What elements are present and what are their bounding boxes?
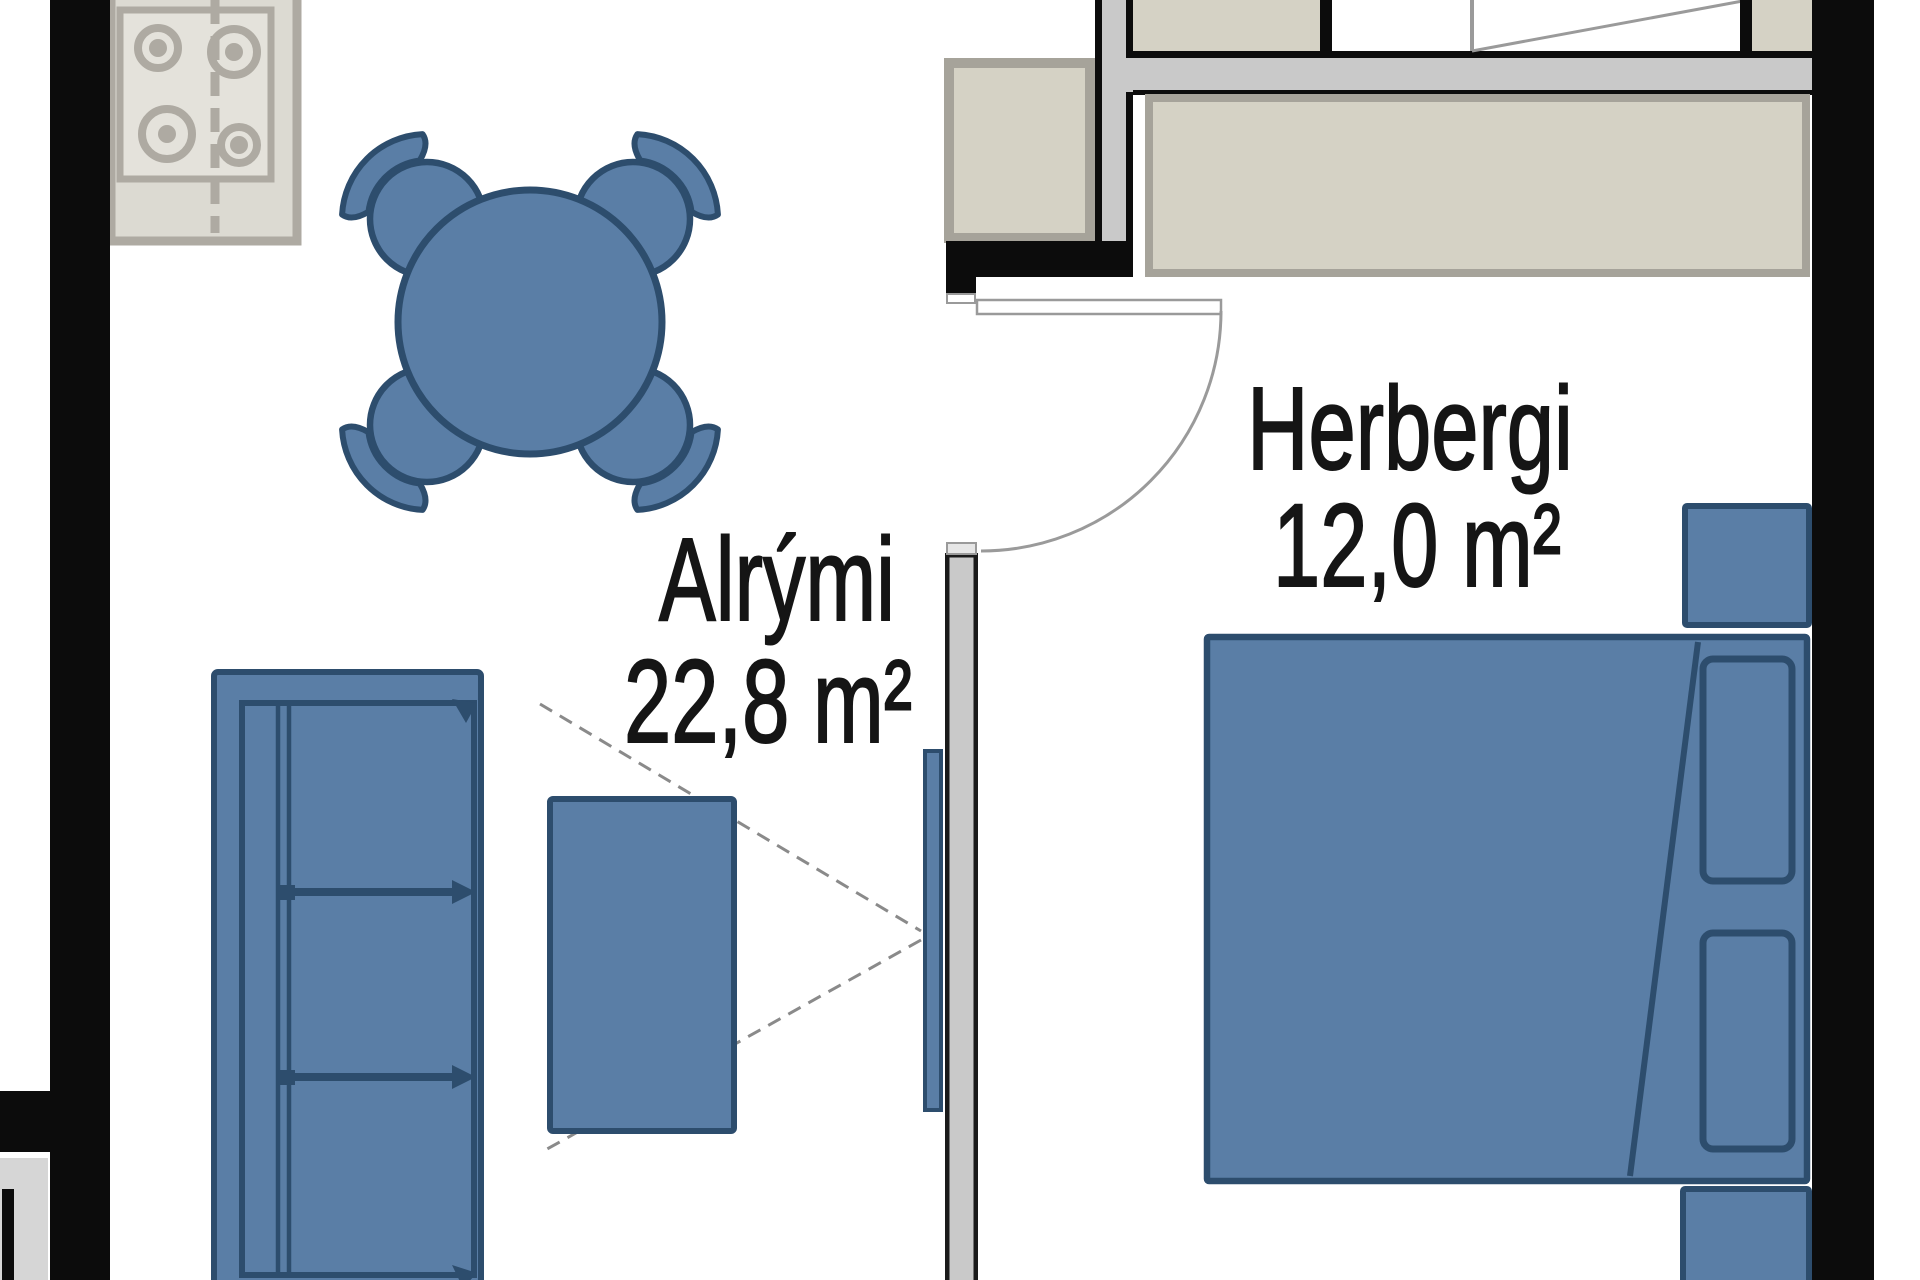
svg-text:22,8 m²: 22,8 m² — [624, 635, 912, 767]
svg-text:Alrými: Alrými — [659, 513, 895, 645]
svg-text:12,0 m²: 12,0 m² — [1273, 479, 1561, 611]
svg-text:Herbergi: Herbergi — [1247, 362, 1573, 494]
